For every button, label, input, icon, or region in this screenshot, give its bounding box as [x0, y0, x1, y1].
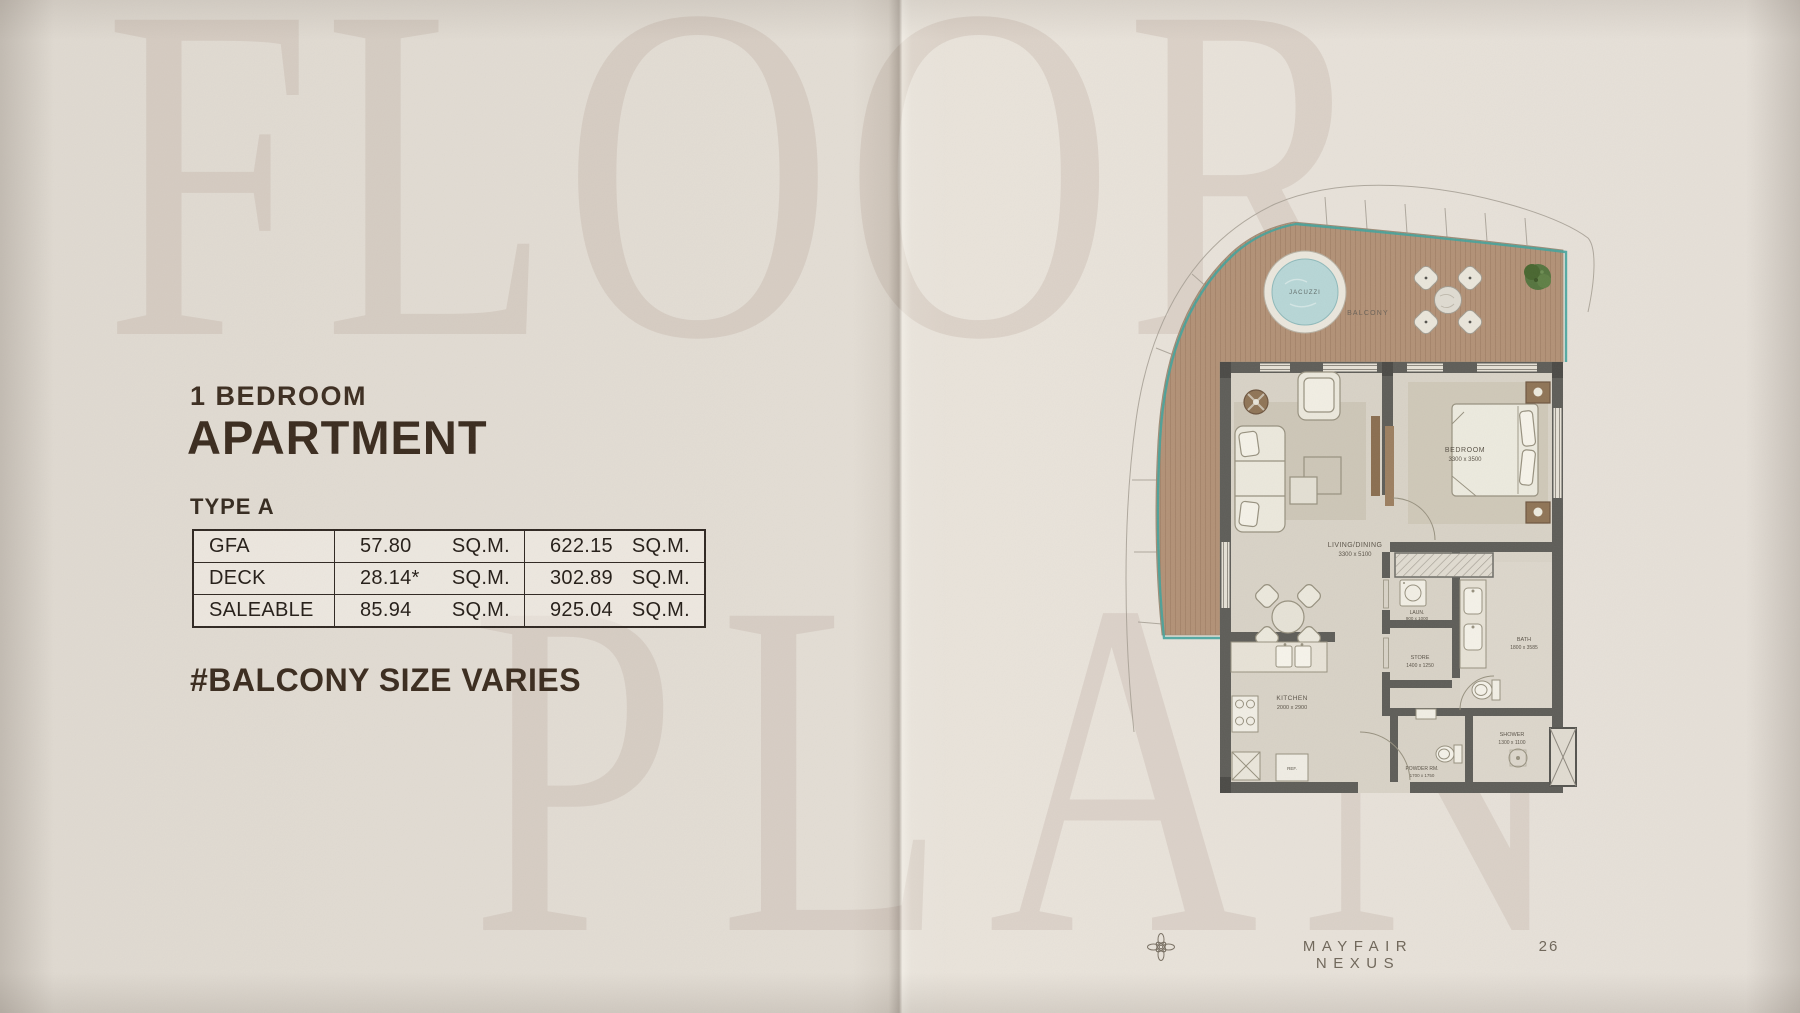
table-row-saleable: SALEABLE 85.94 SQ.M. 925.04 SQ.M. — [194, 594, 704, 626]
metric-value: 85.94 — [360, 599, 412, 622]
jacuzzi-label: JACUZZI — [1289, 290, 1321, 296]
imperial-cell: 925.04 SQ.M. — [524, 595, 704, 626]
imperial-unit: SQ.M. — [632, 599, 690, 622]
imperial-unit: SQ.M. — [632, 567, 690, 590]
wardrobe — [1395, 553, 1493, 577]
fridge-label: REF. — [1287, 766, 1297, 771]
bedroom-label: BEDROOM — [1445, 447, 1485, 454]
brand-rosette-icon — [1147, 933, 1175, 961]
unit-type-label: TYPE A — [190, 494, 275, 520]
jacuzzi: JACUZZI — [1264, 251, 1346, 333]
dining-table — [1272, 601, 1304, 633]
shower-label: SHOWER — [1500, 732, 1525, 738]
metric-value: 57.80 — [360, 535, 412, 558]
unit-subtitle: 1 BEDROOM — [190, 381, 367, 412]
shower-floor — [1473, 716, 1552, 782]
table-row-gfa: GFA 57.80 SQ.M. 622.15 SQ.M. — [194, 531, 704, 562]
laundry-machine — [1400, 580, 1426, 606]
living-dim: 3300 x 5100 — [1338, 552, 1372, 558]
service-shaft — [1550, 728, 1576, 786]
metric-unit: SQ.M. — [452, 567, 510, 590]
balcony-note: #BALCONY SIZE VARIES — [190, 662, 581, 699]
imperial-value: 302.89 — [550, 567, 613, 590]
imperial-unit: SQ.M. — [632, 535, 690, 558]
page-number: 26 — [1524, 938, 1574, 955]
bath-label: BATH — [1517, 637, 1531, 643]
store-label: STORE — [1411, 655, 1430, 661]
metric-unit: SQ.M. — [452, 535, 510, 558]
kitchen-label: KITCHEN — [1276, 695, 1307, 702]
row-label: SALEABLE — [194, 595, 334, 626]
metric-cell: 57.80 SQ.M. — [334, 531, 524, 562]
metric-unit: SQ.M. — [452, 599, 510, 622]
bath-dim: 1800 x 3585 — [1510, 645, 1538, 651]
metric-cell: 28.14* SQ.M. — [334, 563, 524, 594]
powder-label: POWDER RM. — [1405, 766, 1438, 772]
area-table: GFA 57.80 SQ.M. 622.15 SQ.M. DECK 28.14*… — [192, 529, 706, 628]
store-dim: 1400 x 1250 — [1406, 663, 1434, 669]
imperial-value: 925.04 — [550, 599, 613, 622]
table-row-deck: DECK 28.14* SQ.M. 302.89 SQ.M. — [194, 562, 704, 594]
powder-dim: 1700 x 1750 — [1410, 773, 1435, 778]
brochure-spread: { "meta": { "brand": "MAYFAIR NEXUS", "p… — [0, 0, 1800, 1013]
laundry-dim: 900 x 1000 — [1406, 616, 1429, 621]
imperial-cell: 622.15 SQ.M. — [524, 531, 704, 562]
floor-plan: JACUZZI BALCONY — [1120, 180, 1600, 820]
balcony-label: BALCONY — [1347, 310, 1389, 317]
metric-cell: 85.94 SQ.M. — [334, 595, 524, 626]
metric-value: 28.14* — [360, 567, 420, 590]
imperial-cell: 302.89 SQ.M. — [524, 563, 704, 594]
row-label: DECK — [194, 563, 334, 594]
brand-name: MAYFAIR NEXUS — [1258, 938, 1458, 972]
imperial-value: 622.15 — [550, 535, 613, 558]
shower-dim: 1300 x 1100 — [1498, 740, 1525, 746]
row-label: GFA — [194, 531, 334, 562]
living-label: LIVING/DINING — [1328, 542, 1383, 549]
kitchen-dim: 2000 x 2900 — [1277, 705, 1307, 711]
unit-title: APARTMENT — [187, 410, 488, 465]
bedroom-dim: 3300 x 3500 — [1448, 457, 1482, 463]
